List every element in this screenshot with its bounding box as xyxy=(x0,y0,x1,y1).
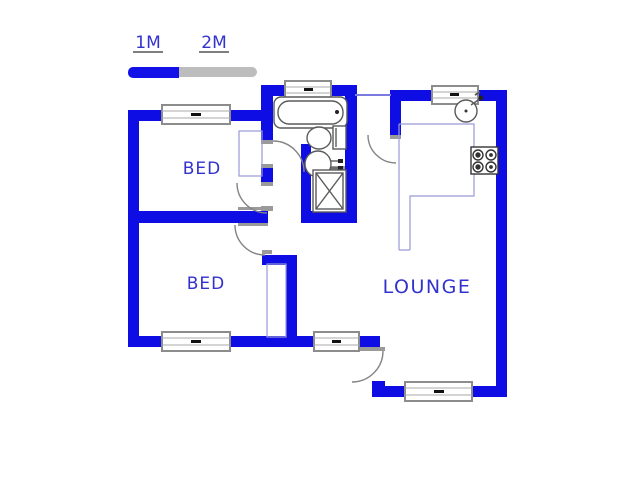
wall-hall-stub xyxy=(261,168,273,182)
floor-plan-drawing: 1M 2M xyxy=(0,0,640,480)
wall-shower-bottom xyxy=(301,211,357,223)
jamb-bed2-door xyxy=(262,250,272,254)
wall-bed2-right xyxy=(286,255,297,347)
scale-bar-gray-segment xyxy=(179,67,257,77)
stove-icon xyxy=(471,147,498,174)
jamb-stub-bottom xyxy=(261,182,273,186)
shower-icon xyxy=(313,170,346,212)
bed2-door-arc xyxy=(235,225,265,255)
wardrobe-bed2-icon xyxy=(267,264,286,337)
scale-bar-blue-end xyxy=(168,67,179,78)
toilet-icon xyxy=(307,126,346,149)
window-bed1 xyxy=(162,105,230,124)
scale-label-2m: 2M xyxy=(201,33,226,53)
kitchen-door-arc xyxy=(368,135,396,163)
floor-plan-page: 1M 2M xyxy=(0,0,640,480)
wall-right-exterior xyxy=(496,90,507,397)
jamb-stub-top xyxy=(261,164,273,168)
wall-bed-divider xyxy=(128,211,268,223)
kitchen-counter-icon xyxy=(399,124,474,250)
scale-bar-gray-end xyxy=(179,67,187,77)
wall-connector-line xyxy=(355,94,391,96)
lounge-room-label: LOUNGE xyxy=(383,276,472,298)
scale-label-1m: 1M xyxy=(135,33,160,53)
window-hall xyxy=(314,332,359,351)
bed1-room-label: BED xyxy=(183,159,222,179)
wall-bathroom-left xyxy=(261,85,273,140)
bathtub-icon xyxy=(274,97,347,128)
scale-bar: 1M 2M xyxy=(128,33,257,78)
window-lounge xyxy=(405,382,472,401)
wardrobe-bed1-icon xyxy=(239,131,262,176)
front-door-arc xyxy=(352,351,383,382)
jamb-bathroom-door-top xyxy=(261,140,273,144)
jamb-divider-frame-bottom xyxy=(238,223,268,226)
wall-left-exterior xyxy=(128,110,139,347)
window-bed2 xyxy=(162,332,230,351)
bed2-room-label: BED xyxy=(187,274,226,294)
bathroom-door-arc xyxy=(273,141,304,172)
